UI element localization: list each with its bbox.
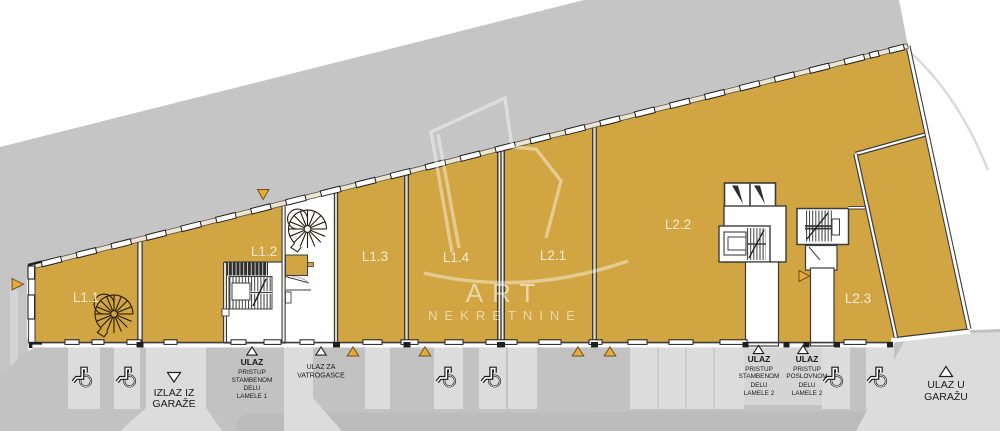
- svg-text:ULAZ: ULAZ: [748, 354, 771, 364]
- svg-text:ULAZ: ULAZ: [241, 357, 264, 367]
- svg-text:L2.1: L2.1: [540, 248, 566, 263]
- svg-text:DELU: DELU: [798, 382, 815, 389]
- svg-text:POSLOVNOM: POSLOVNOM: [786, 373, 827, 380]
- svg-text:PRISTUP: PRISTUP: [745, 366, 773, 373]
- svg-text:PRISTUP: PRISTUP: [793, 366, 821, 373]
- svg-text:ART: ART: [466, 278, 545, 308]
- svg-text:NEKRETNINE: NEKRETNINE: [428, 308, 582, 323]
- svg-text:DELU: DELU: [750, 382, 767, 389]
- svg-text:ULAZ ZA: ULAZ ZA: [307, 364, 336, 371]
- svg-text:PRISTUP: PRISTUP: [238, 369, 266, 376]
- svg-text:STAMBENOM: STAMBENOM: [739, 373, 780, 380]
- svg-text:L1.1: L1.1: [73, 290, 99, 305]
- svg-text:ULAZ: ULAZ: [796, 354, 819, 364]
- svg-text:ULAZ U: ULAZ U: [927, 379, 964, 391]
- svg-text:GARAŽE: GARAŽE: [152, 397, 195, 410]
- svg-text:GARAŽU: GARAŽU: [924, 390, 968, 403]
- svg-text:DELU: DELU: [243, 385, 260, 392]
- svg-text:L2.3: L2.3: [845, 291, 871, 306]
- svg-text:VATROGASCE: VATROGASCE: [297, 373, 345, 380]
- svg-text:L1.3: L1.3: [362, 249, 388, 264]
- svg-text:L1.4: L1.4: [443, 250, 470, 265]
- svg-text:L1.2: L1.2: [251, 244, 277, 259]
- svg-text:LAMELE 1: LAMELE 1: [237, 393, 268, 400]
- svg-text:LAMELE 2: LAMELE 2: [792, 390, 823, 397]
- svg-text:L2.2: L2.2: [665, 217, 691, 232]
- svg-text:LAMELE 2: LAMELE 2: [744, 390, 775, 397]
- svg-text:STAMBENOM: STAMBENOM: [232, 377, 273, 384]
